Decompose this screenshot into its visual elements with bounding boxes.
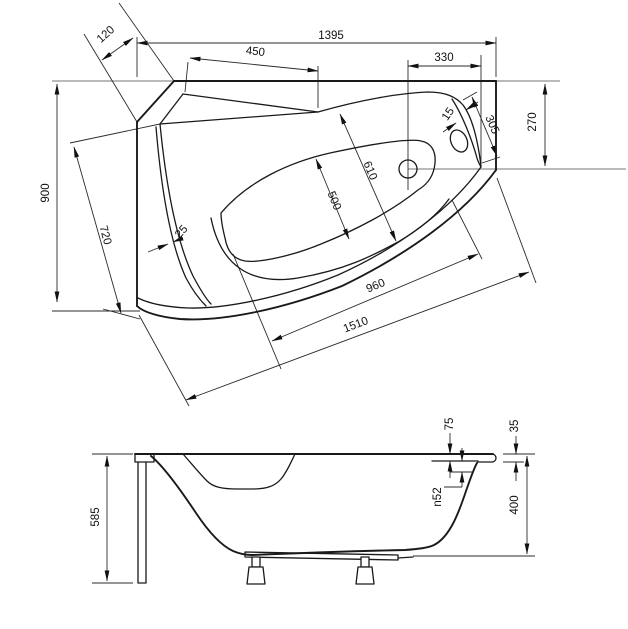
inner-rim-curve	[318, 92, 481, 166]
dim-basin-width-top: 610	[360, 160, 379, 182]
dim-drain-to-edge: 330	[434, 52, 453, 64]
dim-rim-thickness: 35	[509, 420, 521, 433]
support-board	[245, 552, 398, 560]
support-board-tail	[398, 557, 413, 558]
corner-cut-inner-line	[160, 94, 183, 124]
dim-shell-depth: 400	[509, 495, 521, 514]
dim-basin-width-bottom: 500	[325, 190, 343, 212]
top-view-dimension-lines	[52, 3, 545, 406]
dim-front-edge-length: 1510	[342, 315, 370, 335]
top-view-dimension-labels: 1395 120 450 330 900 720 25 610 500 960 …	[40, 24, 539, 335]
dim-end-width: 270	[527, 112, 539, 131]
dim-basin-length-bottom: 960	[365, 277, 387, 296]
side-view-dimension-lines	[92, 433, 535, 583]
corner-cut-edge	[137, 81, 174, 122]
front-curved-edge	[137, 170, 496, 319]
headrest-recess-profile	[183, 454, 295, 489]
rim-wedge-lower-line	[160, 112, 318, 124]
dim-total-height: 585	[90, 507, 102, 526]
side-rim-end-block	[478, 454, 496, 462]
bathtub-technical-drawing: 1395 120 450 330 900 720 25 610 500 960 …	[0, 0, 628, 624]
shell-profile	[151, 456, 477, 555]
foot-right	[356, 557, 374, 584]
dim-headrest-edge: 450	[245, 45, 265, 59]
dim-overall-width: 900	[40, 183, 52, 202]
dim-overflow-offset: 75	[444, 418, 456, 431]
top-view-tub-inner-lines	[138, 92, 481, 308]
basin-waterline-curve	[211, 199, 449, 280]
dim-seat-rim-width: 15	[440, 106, 457, 123]
drawing-canvas: 1395 120 450 330 900 720 25 610 500 960 …	[0, 0, 628, 624]
overflow-hole	[447, 127, 471, 155]
dim-overflow-diameter: n52	[432, 487, 444, 506]
dim-overall-length: 1395	[318, 30, 344, 42]
inner-rim-bottom-curve	[138, 167, 481, 308]
side-apron-panel	[138, 462, 146, 583]
dim-corner-cut: 120	[95, 24, 117, 46]
dim-seat-edge-length: 305	[482, 114, 501, 136]
foot-left	[247, 557, 265, 584]
side-view-tub	[135, 454, 496, 584]
dim-inner-width: 720	[97, 224, 114, 246]
rim-wedge-upper-line	[183, 94, 318, 112]
